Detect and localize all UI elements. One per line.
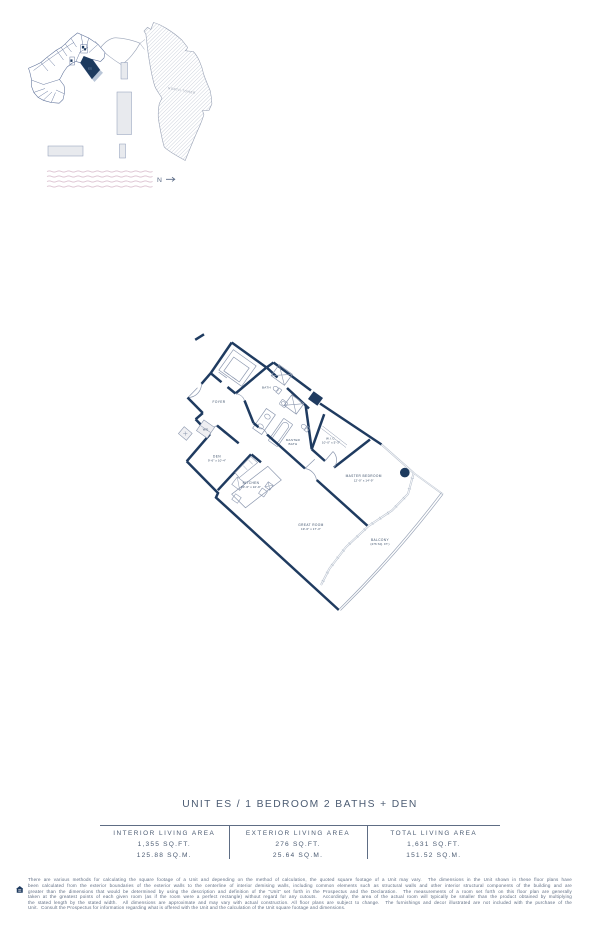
svg-text:10'-0" x 5'-3": 10'-0" x 5'-3" [322,440,340,444]
svg-text:N: N [157,177,162,184]
svg-text:BATH: BATH [289,442,298,446]
svg-text:12'-0" x 14'-9": 12'-0" x 14'-9" [354,478,374,482]
svg-text:ES: ES [88,67,92,71]
svg-text:(276 SQ. FT.): (276 SQ. FT.) [370,542,389,546]
svg-text:W/D: W/D [203,428,209,432]
svg-text:19'-6" x 17'-3": 19'-6" x 17'-3" [301,527,321,531]
svg-text:BATH: BATH [262,386,271,390]
svg-text:FOYER: FOYER [213,400,226,404]
svg-text:9'-6" x 10'-4": 9'-6" x 10'-4" [208,459,226,463]
svg-text:13'-6" x 10'-9": 13'-6" x 10'-9" [241,485,261,489]
